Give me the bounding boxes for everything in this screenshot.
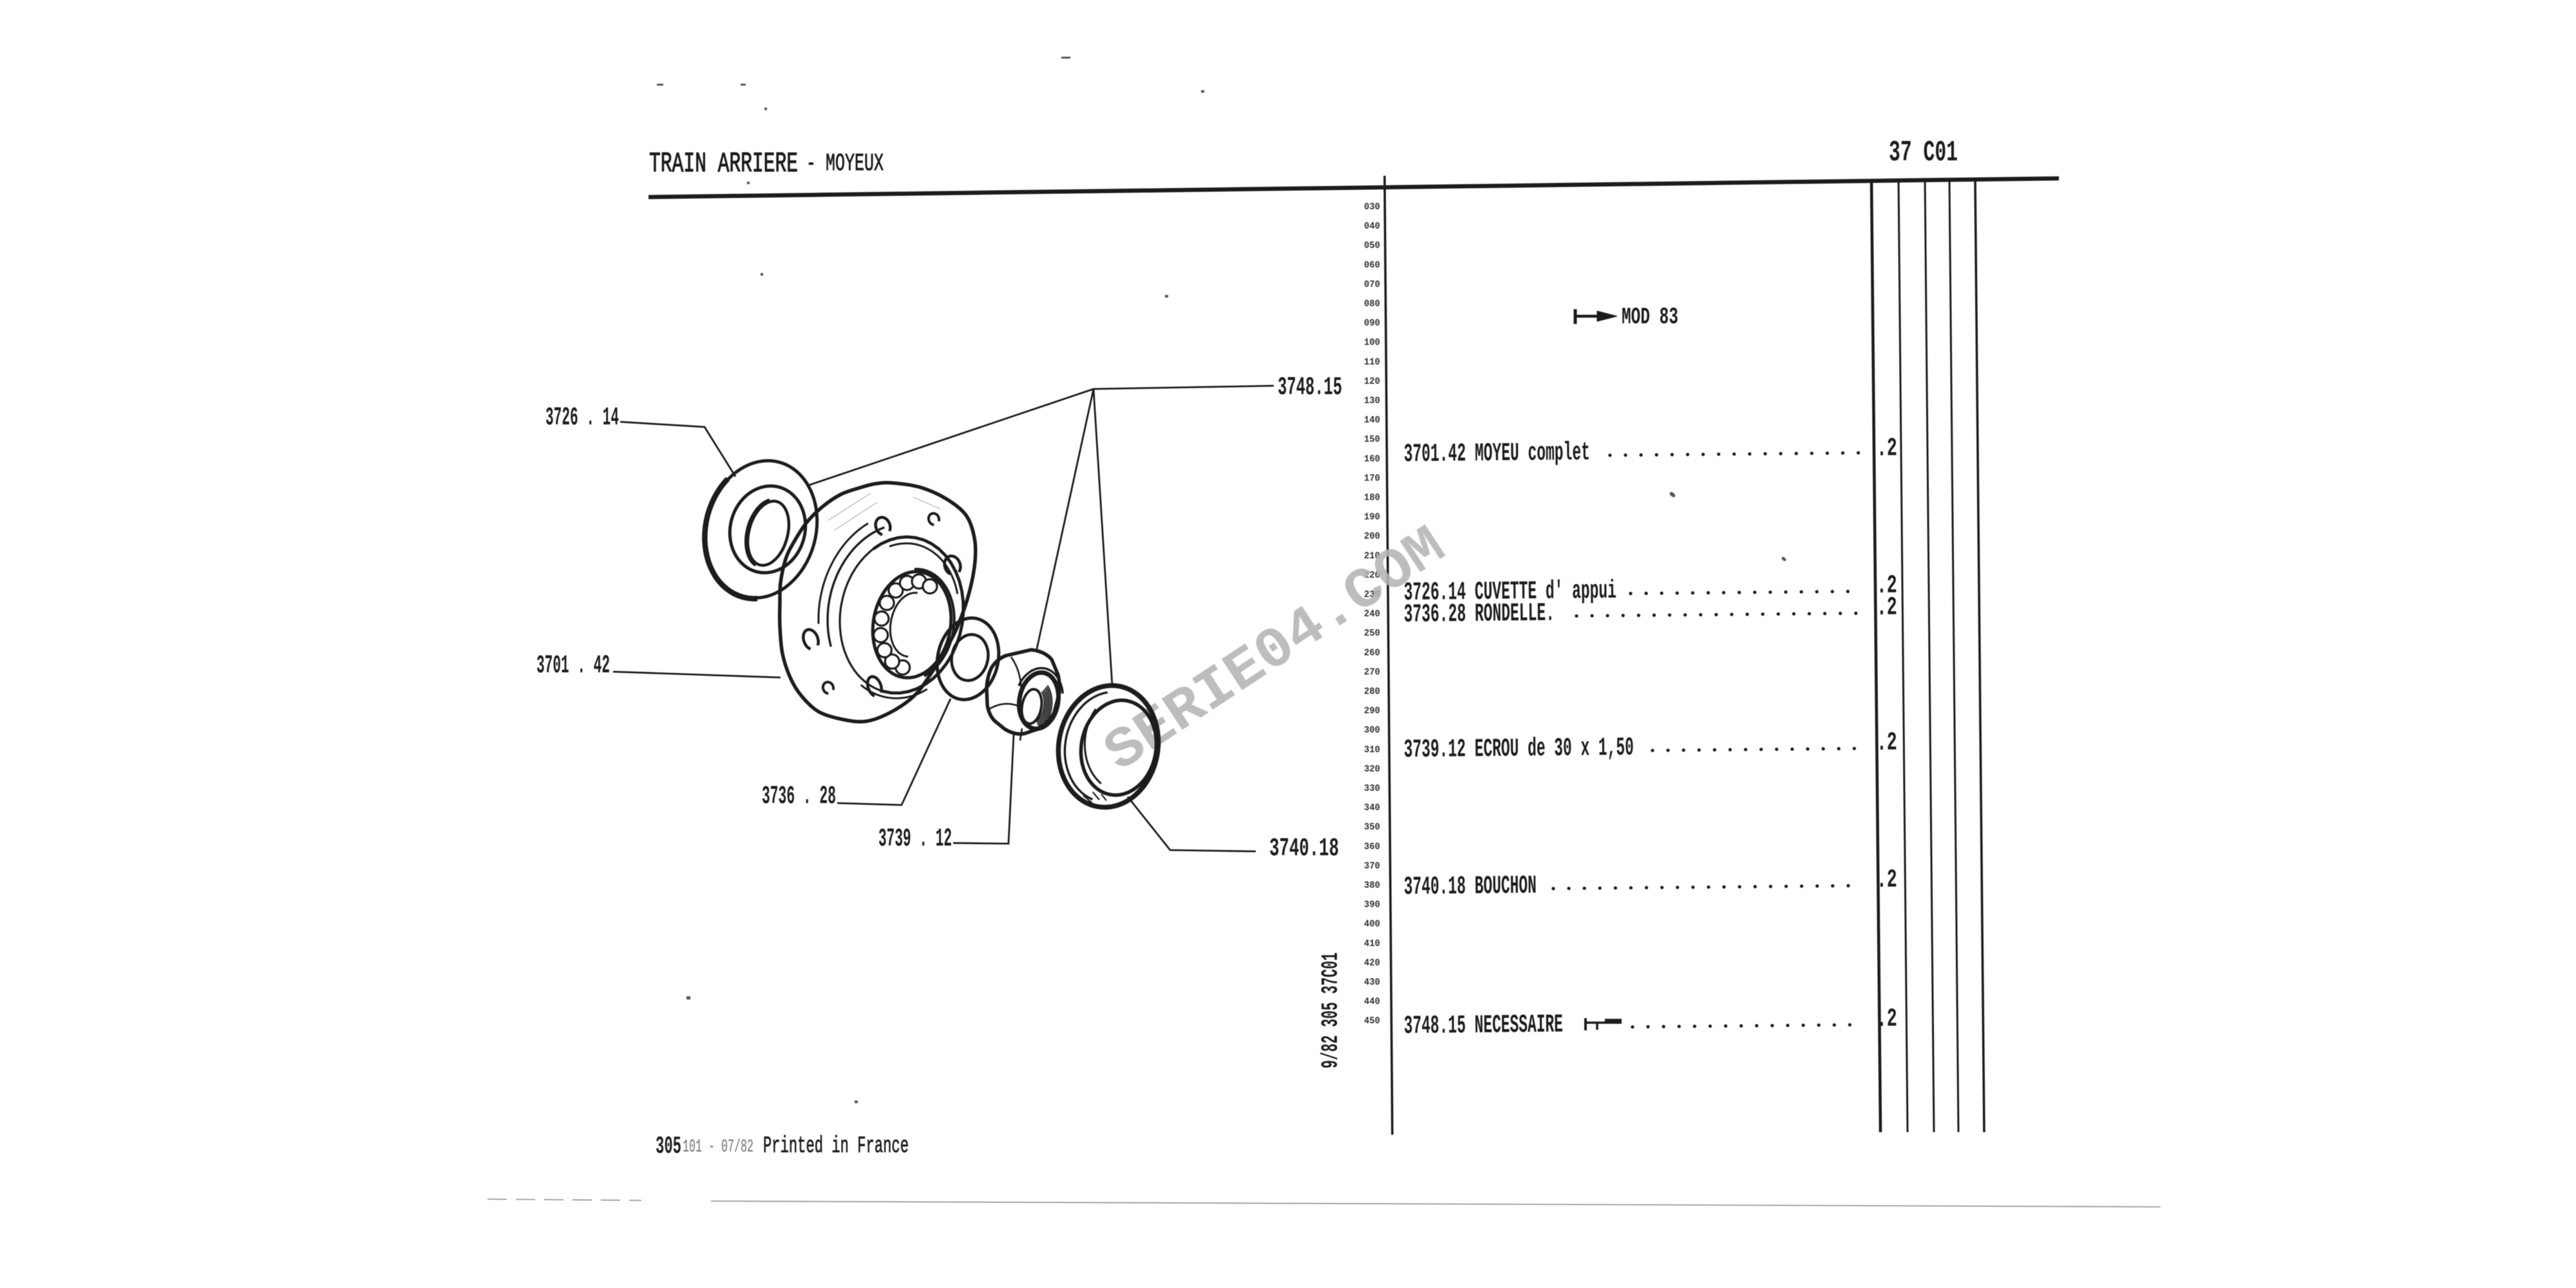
svg-text:080: 080 bbox=[1364, 299, 1380, 310]
svg-text:420: 420 bbox=[1364, 958, 1380, 969]
svg-text:TRAIN ARRIERE: TRAIN ARRIERE bbox=[649, 148, 798, 180]
svg-text:170: 170 bbox=[1364, 473, 1380, 484]
svg-text:380: 380 bbox=[1364, 880, 1380, 891]
svg-text:305: 305 bbox=[656, 1133, 681, 1160]
svg-text:3740.18 BOUCHON: 3740.18 BOUCHON bbox=[1404, 872, 1537, 902]
svg-text:340: 340 bbox=[1364, 802, 1380, 813]
svg-text:050: 050 bbox=[1364, 240, 1380, 251]
svg-text:3748.15 NECESSAIRE: 3748.15 NECESSAIRE bbox=[1404, 1011, 1563, 1041]
svg-text:200: 200 bbox=[1364, 531, 1380, 542]
svg-text:400: 400 bbox=[1364, 919, 1380, 930]
svg-text:160: 160 bbox=[1364, 453, 1380, 464]
svg-text:3740.18: 3740.18 bbox=[1269, 835, 1339, 864]
svg-text:320: 320 bbox=[1364, 764, 1380, 775]
svg-text:100: 100 bbox=[1364, 337, 1380, 348]
svg-text:3701 . 42: 3701 . 42 bbox=[536, 652, 610, 681]
svg-text:040: 040 bbox=[1364, 221, 1380, 232]
svg-text:.2: .2 bbox=[1877, 594, 1897, 623]
svg-text:390: 390 bbox=[1364, 900, 1380, 911]
svg-text:140: 140 bbox=[1364, 415, 1380, 426]
svg-text:090: 090 bbox=[1364, 318, 1380, 329]
svg-text:330: 330 bbox=[1364, 783, 1380, 794]
svg-text:270: 270 bbox=[1364, 667, 1380, 677]
svg-text:070: 070 bbox=[1364, 279, 1380, 290]
svg-text:9/82 305 37C01: 9/82 305 37C01 bbox=[1318, 952, 1344, 1068]
svg-text:280: 280 bbox=[1364, 687, 1380, 697]
svg-text:- MOYEUX: - MOYEUX bbox=[806, 150, 884, 178]
svg-text:300: 300 bbox=[1364, 725, 1380, 736]
svg-text:120: 120 bbox=[1364, 376, 1380, 387]
svg-text:3726 . 14: 3726 . 14 bbox=[545, 404, 619, 433]
svg-text:350: 350 bbox=[1364, 822, 1380, 833]
svg-text:37 C01: 37 C01 bbox=[1889, 137, 1958, 169]
svg-text:3736 . 28: 3736 . 28 bbox=[762, 782, 836, 811]
svg-text:260: 260 bbox=[1364, 647, 1380, 658]
svg-text:030: 030 bbox=[1364, 202, 1380, 213]
svg-text:410: 410 bbox=[1364, 938, 1380, 949]
svg-text:3739 . 12: 3739 . 12 bbox=[878, 825, 952, 854]
svg-text:440: 440 bbox=[1364, 996, 1380, 1007]
svg-text:3739.12 ECROU de 30 x 1,50: 3739.12 ECROU de 30 x 1,50 bbox=[1404, 734, 1634, 765]
svg-text:250: 250 bbox=[1364, 628, 1380, 639]
svg-text:Printed in France: Printed in France bbox=[763, 1133, 909, 1159]
svg-text:3701.42 MOYEU complet: 3701.42 MOYEU complet bbox=[1404, 439, 1590, 469]
svg-text:130: 130 bbox=[1364, 395, 1380, 406]
svg-text:180: 180 bbox=[1364, 493, 1380, 504]
svg-text:430: 430 bbox=[1364, 977, 1380, 988]
svg-text:3748.15: 3748.15 bbox=[1278, 374, 1342, 402]
svg-text:290: 290 bbox=[1364, 706, 1380, 717]
svg-text:.2: .2 bbox=[1877, 1005, 1897, 1034]
svg-text:.2: .2 bbox=[1877, 435, 1897, 464]
svg-text:MOD 83: MOD 83 bbox=[1622, 304, 1678, 330]
svg-text:150: 150 bbox=[1364, 434, 1380, 445]
svg-text:SERIE04.COM: SERIE04.COM bbox=[1094, 515, 1457, 786]
svg-text:.2: .2 bbox=[1877, 866, 1897, 895]
svg-text:310: 310 bbox=[1364, 744, 1380, 755]
svg-text:060: 060 bbox=[1364, 260, 1380, 270]
svg-text:.2: .2 bbox=[1877, 729, 1897, 758]
svg-text:101 - 07/82: 101 - 07/82 bbox=[683, 1137, 753, 1157]
svg-text:3736.28 RONDELLE.: 3736.28 RONDELLE. bbox=[1404, 600, 1555, 630]
svg-text:190: 190 bbox=[1364, 512, 1380, 523]
svg-text:370: 370 bbox=[1364, 860, 1380, 871]
svg-text:360: 360 bbox=[1364, 841, 1380, 852]
svg-text:110: 110 bbox=[1364, 357, 1380, 368]
svg-text:450: 450 bbox=[1364, 1016, 1380, 1027]
